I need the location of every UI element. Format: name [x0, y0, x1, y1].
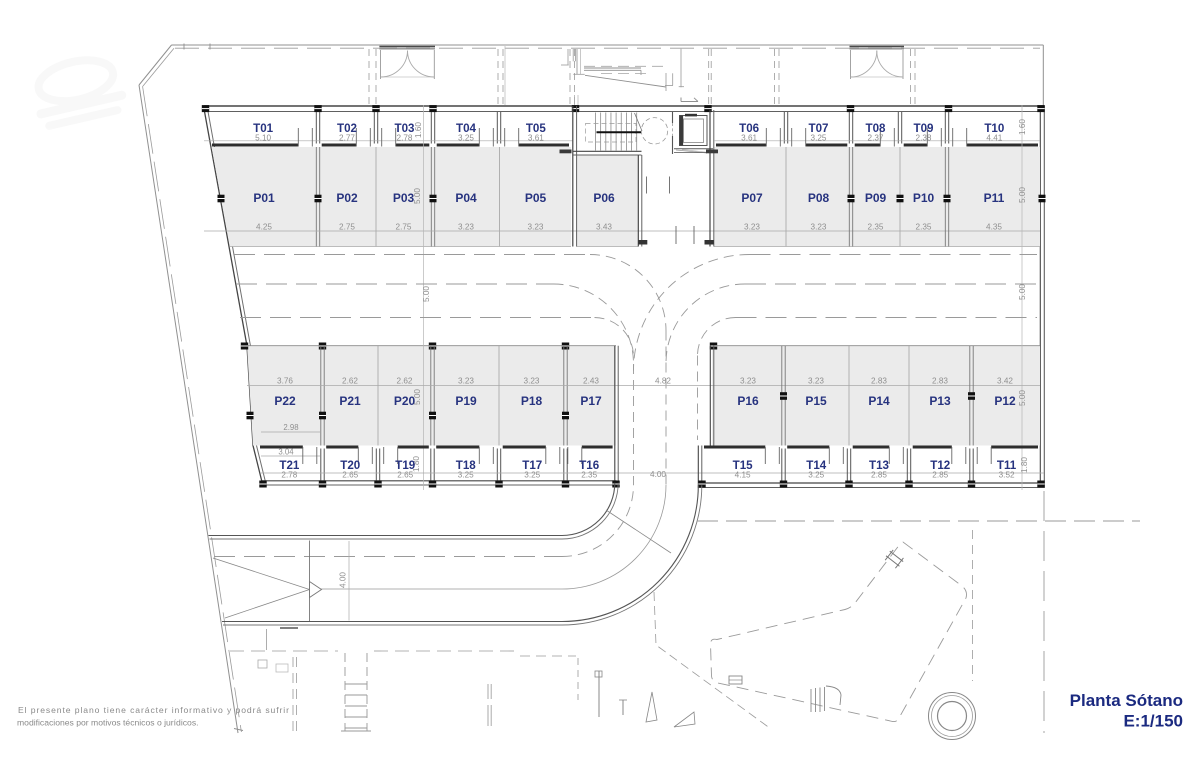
svg-text:5.00: 5.00: [1018, 284, 1027, 300]
svg-text:3.76: 3.76: [277, 376, 293, 385]
svg-text:modificaciones por motivos téc: modificaciones por motivos técnicos o ju…: [17, 718, 199, 728]
svg-text:1.80: 1.80: [1020, 457, 1029, 473]
svg-text:El presente plano tiene caráct: El presente plano tiene carácter informa…: [18, 705, 289, 715]
svg-text:4.00: 4.00: [650, 470, 666, 479]
svg-text:P17: P17: [580, 394, 602, 408]
svg-text:3.61: 3.61: [741, 133, 757, 142]
svg-text:5.00: 5.00: [1018, 187, 1027, 203]
svg-text:3.61: 3.61: [528, 133, 544, 142]
svg-text:3.23: 3.23: [808, 376, 824, 385]
svg-text:2.75: 2.75: [396, 223, 412, 232]
svg-text:P08: P08: [808, 191, 830, 205]
svg-text:3.23: 3.23: [524, 376, 540, 385]
svg-text:3.23: 3.23: [458, 223, 474, 232]
svg-text:2.35: 2.35: [916, 223, 932, 232]
svg-text:P21: P21: [339, 394, 361, 408]
svg-text:4.41: 4.41: [986, 133, 1002, 142]
svg-text:P05: P05: [525, 191, 547, 205]
svg-text:P18: P18: [521, 394, 543, 408]
svg-text:2.35: 2.35: [868, 223, 884, 232]
svg-text:P22: P22: [274, 394, 296, 408]
svg-text:3.23: 3.23: [528, 223, 544, 232]
svg-text:P03: P03: [393, 191, 415, 205]
svg-text:2.85: 2.85: [871, 471, 887, 480]
svg-text:P04: P04: [455, 191, 477, 205]
svg-text:3.25: 3.25: [458, 133, 474, 142]
svg-text:3.42: 3.42: [997, 376, 1013, 385]
svg-text:5.10: 5.10: [255, 133, 271, 142]
svg-text:P01: P01: [253, 191, 275, 205]
svg-text:4.35: 4.35: [986, 223, 1002, 232]
svg-text:P20: P20: [394, 394, 416, 408]
svg-text:3.23: 3.23: [458, 376, 474, 385]
svg-text:3.04: 3.04: [278, 448, 294, 457]
svg-text:2.77: 2.77: [339, 133, 355, 142]
svg-text:3.23: 3.23: [744, 223, 760, 232]
svg-text:P09: P09: [865, 191, 887, 205]
svg-text:2.98: 2.98: [283, 423, 298, 432]
svg-text:2.65: 2.65: [397, 471, 413, 480]
svg-text:3.25: 3.25: [524, 471, 540, 480]
svg-text:2.62: 2.62: [397, 376, 413, 385]
svg-text:E:1/150: E:1/150: [1123, 712, 1183, 731]
svg-text:2.62: 2.62: [342, 376, 358, 385]
svg-text:3.25: 3.25: [811, 133, 827, 142]
svg-text:P19: P19: [455, 394, 477, 408]
svg-text:3.25: 3.25: [808, 471, 824, 480]
svg-text:P14: P14: [868, 394, 890, 408]
svg-text:Planta Sótano: Planta Sótano: [1070, 691, 1183, 710]
svg-text:2.43: 2.43: [583, 376, 599, 385]
svg-text:4.25: 4.25: [256, 223, 272, 232]
svg-text:2.78: 2.78: [281, 471, 297, 480]
svg-text:4.00: 4.00: [339, 572, 348, 588]
svg-text:2.37: 2.37: [868, 133, 884, 142]
svg-text:P11: P11: [984, 191, 1005, 205]
svg-text:3.43: 3.43: [596, 223, 612, 232]
svg-text:2.35: 2.35: [581, 471, 597, 480]
svg-text:1.60: 1.60: [1018, 119, 1027, 135]
svg-text:2.78: 2.78: [397, 133, 413, 142]
svg-text:2.75: 2.75: [339, 223, 355, 232]
svg-text:P02: P02: [336, 191, 358, 205]
svg-text:P16: P16: [737, 394, 759, 408]
svg-text:P13: P13: [929, 394, 951, 408]
svg-text:4.15: 4.15: [735, 471, 751, 480]
svg-text:P07: P07: [741, 191, 763, 205]
svg-text:P06: P06: [593, 191, 615, 205]
svg-text:3.52: 3.52: [999, 471, 1015, 480]
svg-text:P15: P15: [805, 394, 827, 408]
svg-text:2.65: 2.65: [342, 471, 358, 480]
svg-text:1.60: 1.60: [414, 122, 423, 138]
svg-text:3.25: 3.25: [458, 471, 474, 480]
svg-text:P10: P10: [913, 191, 935, 205]
svg-text:5.00: 5.00: [1018, 390, 1027, 406]
svg-text:P12: P12: [994, 394, 1016, 408]
svg-text:2.85: 2.85: [932, 471, 948, 480]
svg-text:4.82: 4.82: [655, 376, 671, 385]
svg-text:5.00: 5.00: [422, 286, 431, 302]
svg-text:3.23: 3.23: [811, 223, 827, 232]
svg-text:2.83: 2.83: [871, 376, 887, 385]
svg-text:3.23: 3.23: [740, 376, 756, 385]
svg-text:5.00: 5.00: [413, 188, 422, 204]
svg-text:2.38: 2.38: [916, 133, 932, 142]
svg-text:2.83: 2.83: [932, 376, 948, 385]
